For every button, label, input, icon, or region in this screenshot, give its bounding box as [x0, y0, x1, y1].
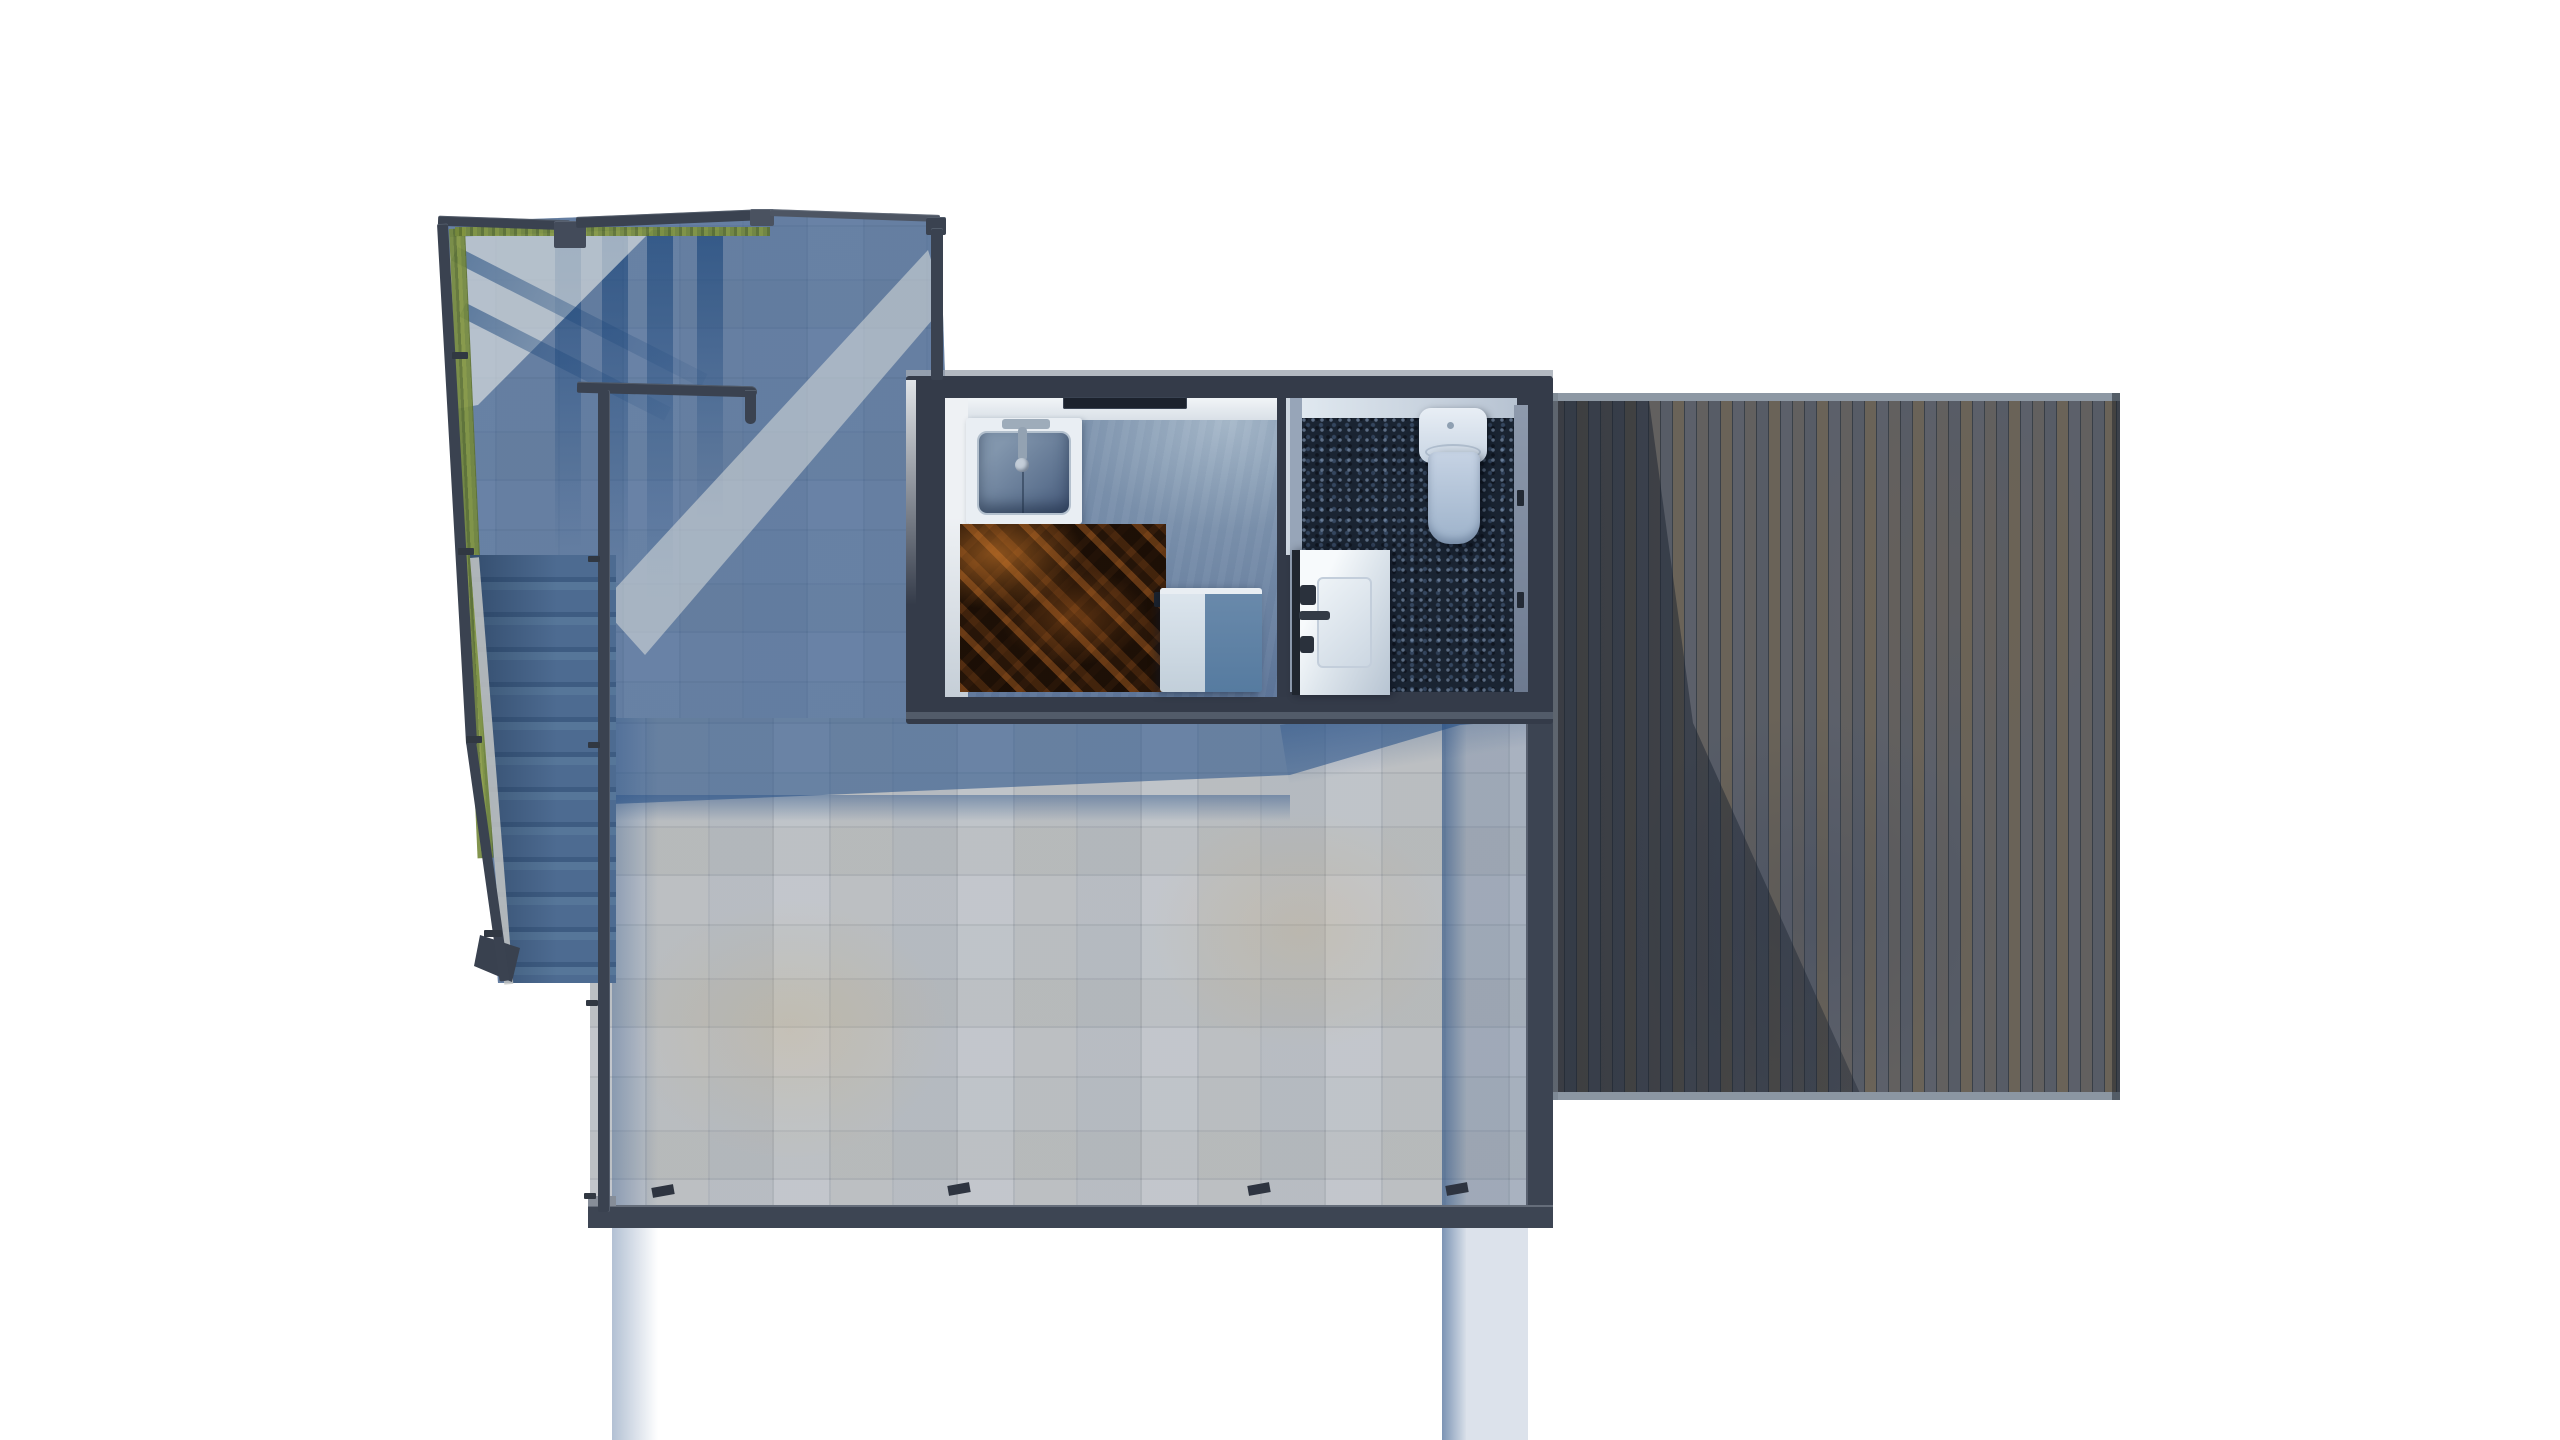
wood-sunlit-patch	[960, 524, 1166, 692]
wall-joint-mark	[1247, 1182, 1270, 1196]
patio-right-wall	[1526, 700, 1553, 1228]
herringbone-wood-floor	[960, 524, 1166, 692]
vanity-wall-strip	[1292, 550, 1300, 695]
vanity-faucet-spout	[1299, 611, 1330, 620]
rail-bracket	[586, 1000, 598, 1006]
render-canvas	[0, 0, 2560, 1440]
wall-joint-mark	[651, 1184, 674, 1198]
door-hinge	[1517, 592, 1524, 608]
terrace-right-rail	[931, 228, 943, 380]
rail-bracket	[584, 1193, 596, 1199]
house-module	[906, 370, 1553, 720]
patio-l-rail-hook	[745, 390, 756, 424]
stone-warm-tint	[630, 900, 950, 1160]
deck-edge-trim-top	[1553, 393, 2120, 401]
vanity-basin	[1317, 577, 1372, 668]
shadow-soft-edge	[590, 795, 1290, 821]
kitchen-cabinet	[1160, 588, 1262, 692]
rail-bracket	[484, 930, 502, 937]
wall-shadow-strip-soft	[1466, 718, 1528, 1440]
cabinet-panel-blue	[1205, 588, 1262, 692]
wall-shadow-strip	[1442, 718, 1466, 1440]
bathroom-right-wall-band	[1514, 405, 1528, 692]
stone-warm-tint	[1150, 810, 1450, 1050]
rail-bracket	[588, 742, 600, 748]
rail-bracket	[452, 352, 468, 359]
wall-joint-mark	[947, 1182, 970, 1196]
bathroom-vanity	[1292, 550, 1390, 695]
vanity-faucet-knob	[1300, 636, 1314, 653]
deck-edge-trim-left	[1553, 393, 1558, 1100]
counter-vent-slot	[1063, 397, 1187, 409]
cabinet-top-edge	[1160, 588, 1262, 594]
faucet-head	[1015, 458, 1029, 472]
wall-bottom-highlight	[906, 712, 1553, 719]
patio-bottom-wall	[588, 1205, 1553, 1228]
patio-left-rail-vertical	[598, 390, 610, 1212]
toilet-flush-button	[1447, 422, 1454, 429]
rail-bracket	[458, 548, 474, 555]
deck-edge-right	[2112, 393, 2120, 1100]
toilet-bowl	[1428, 452, 1480, 544]
faucet-spout	[1018, 427, 1027, 461]
rail-bracket	[588, 556, 600, 562]
wall-left-highlight	[906, 380, 916, 605]
door-hinge	[1517, 490, 1524, 506]
deck-edge-trim-bottom	[1553, 1092, 2120, 1100]
vanity-faucet-knob	[1300, 585, 1316, 605]
cabinet-panel-light	[1160, 588, 1205, 692]
rail-bracket	[466, 736, 482, 743]
grass-strip-top	[455, 227, 770, 236]
